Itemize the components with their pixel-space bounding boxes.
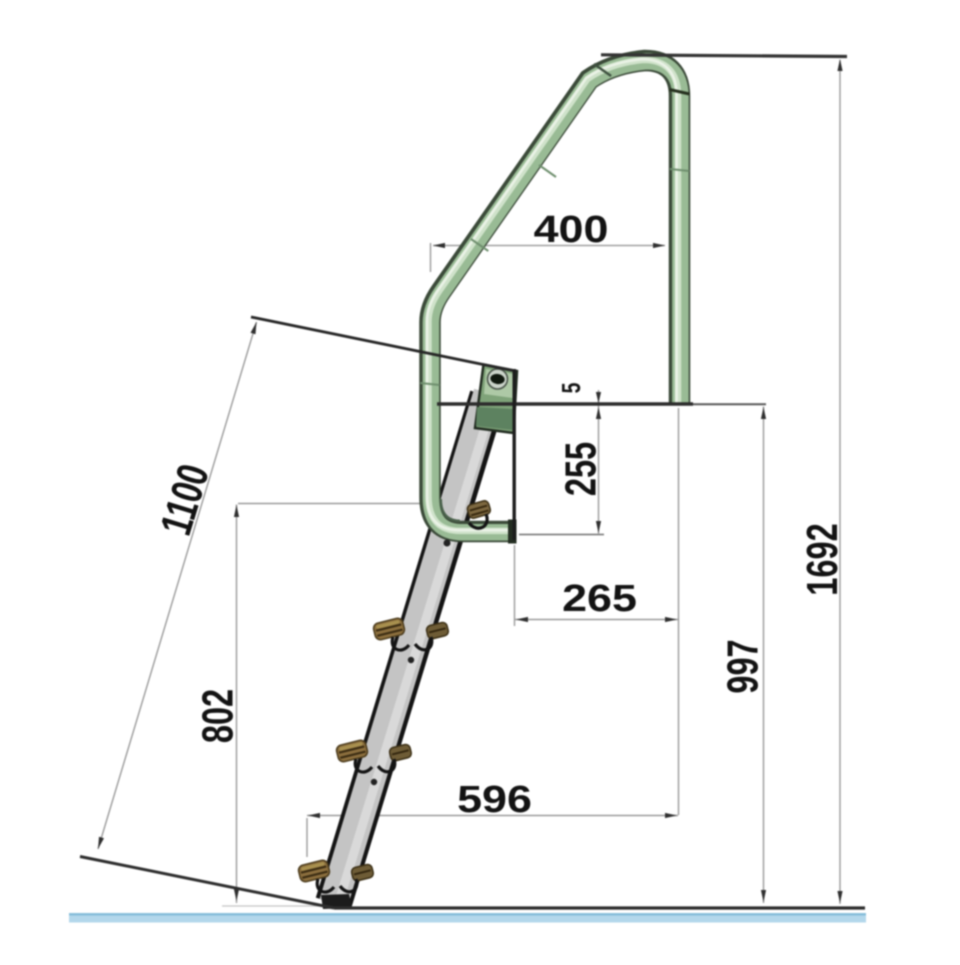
svg-text:997: 997 — [719, 639, 768, 693]
svg-text:596: 596 — [457, 777, 532, 820]
svg-text:1692: 1692 — [798, 523, 847, 595]
svg-text:802: 802 — [194, 689, 243, 743]
svg-text:265: 265 — [562, 576, 637, 619]
svg-text:255: 255 — [557, 442, 606, 496]
svg-text:400: 400 — [534, 207, 609, 250]
svg-text:5: 5 — [556, 382, 585, 393]
